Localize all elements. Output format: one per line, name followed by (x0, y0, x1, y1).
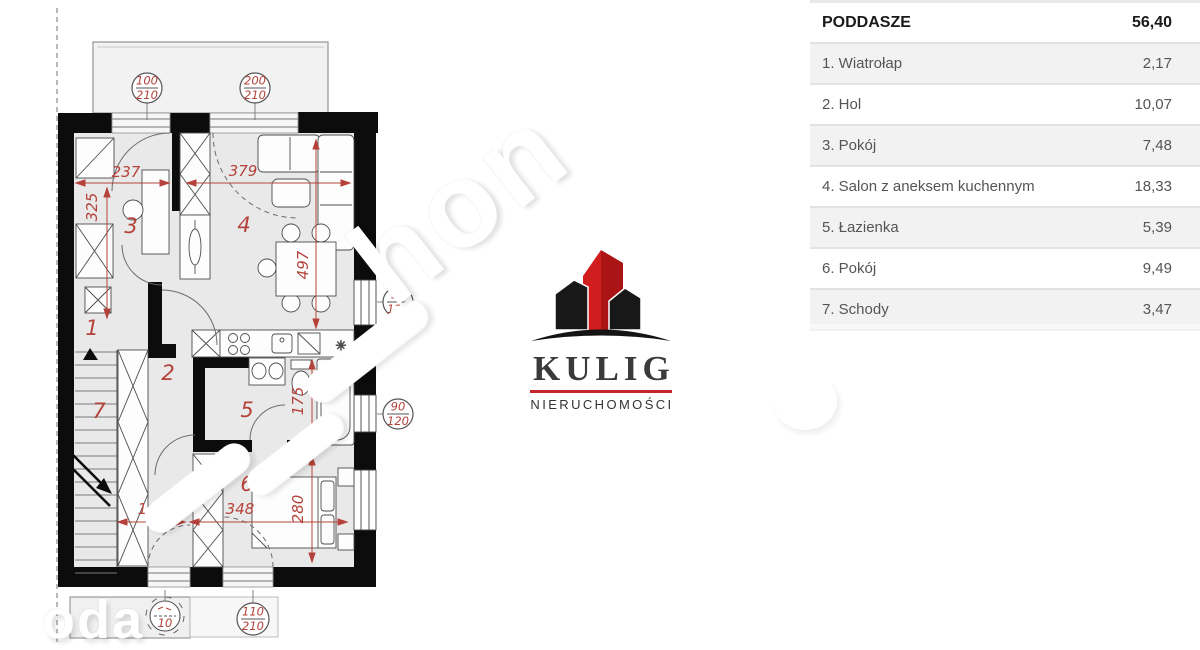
table-header-row: PODDASZE 56,40 (810, 3, 1200, 44)
table-row: 5. Łazienka 5,39 (810, 208, 1200, 249)
svg-text:100: 100 (136, 74, 158, 88)
room-name: 7. Schody (822, 301, 889, 318)
balcony-top (93, 42, 328, 113)
room-label-3: 3 (124, 214, 137, 238)
table-row: 4. Salon z aneksem kuchennym 18,33 (810, 167, 1200, 208)
logo-subtitle: NIERUCHOMOŚCI (528, 397, 674, 412)
logo-underline (530, 390, 672, 393)
logo-name: KULIG (528, 349, 674, 389)
svg-text:379: 379 (229, 162, 258, 180)
right-wall-windows (354, 280, 376, 530)
room-name: 3. Pokój (822, 137, 876, 154)
svg-text:10: 10 (158, 616, 173, 630)
svg-text:280: 280 (289, 495, 307, 524)
logo-buildings-icon (528, 246, 674, 342)
room-name: 2. Hol (822, 96, 861, 113)
svg-text:120: 120 (387, 302, 409, 316)
room-name: 1. Wiatrołap (822, 55, 902, 72)
svg-text:110: 110 (242, 605, 264, 619)
svg-text:90: 90 (391, 400, 406, 414)
svg-text:90: 90 (391, 288, 406, 302)
room-area: 5,39 (1143, 219, 1172, 236)
svg-text:210: 210 (244, 88, 266, 102)
kulig-logo: KULIG NIERUCHOMOŚCI (528, 246, 674, 412)
svg-text:210: 210 (242, 619, 264, 633)
marker-90-120-upper: 90 120 (377, 287, 413, 317)
svg-text:325: 325 (83, 193, 101, 222)
table-row: 2. Hol 10,07 (810, 85, 1200, 126)
floor-plan: ✳ (0, 0, 470, 644)
room-label-6: 6 (240, 472, 253, 496)
room-name: 4. Salon z aneksem kuchennym (822, 178, 1035, 195)
room-name: 5. Łazienka (822, 219, 899, 236)
room-area: 18,33 (1134, 178, 1172, 195)
svg-text:210: 210 (136, 88, 158, 102)
svg-text:497: 497 (294, 250, 312, 279)
svg-text:200: 200 (244, 74, 266, 88)
room-label-5: 5 (240, 398, 253, 422)
table-fade-overlay (810, 324, 1200, 384)
fridge-symbol-icon: ✳ (336, 338, 347, 353)
marker-90-120-lower: 90 120 (377, 399, 413, 429)
svg-text:237: 237 (112, 163, 141, 181)
table-row: 1. Wiatrołap 2,17 (810, 44, 1200, 85)
svg-text:175: 175 (289, 387, 307, 416)
room-label-1: 1 (85, 316, 98, 340)
table-row: 3. Pokój 7,48 (810, 126, 1200, 167)
svg-text:120: 120 (387, 414, 409, 428)
room-name: 6. Pokój (822, 260, 876, 277)
level-total-area: 56,40 (1132, 14, 1172, 32)
room-area: 7,48 (1143, 137, 1172, 154)
room-area: 3,47 (1143, 301, 1172, 318)
room-label-7: 7 (92, 399, 106, 423)
svg-text:160: 160 (138, 500, 167, 518)
room-area: 9,49 (1143, 260, 1172, 277)
level-name: PODDASZE (822, 14, 911, 32)
room-label-4: 4 (237, 213, 250, 237)
room-area-table: PODDASZE 56,40 1. Wiatrołap 2,17 2. Hol … (810, 0, 1200, 370)
table-row: 6. Pokój 9,49 (810, 249, 1200, 290)
room-label-2: 2 (161, 361, 174, 385)
svg-text:348: 348 (226, 500, 255, 518)
room-area: 10,07 (1134, 96, 1172, 113)
room-area: 2,17 (1143, 55, 1172, 72)
